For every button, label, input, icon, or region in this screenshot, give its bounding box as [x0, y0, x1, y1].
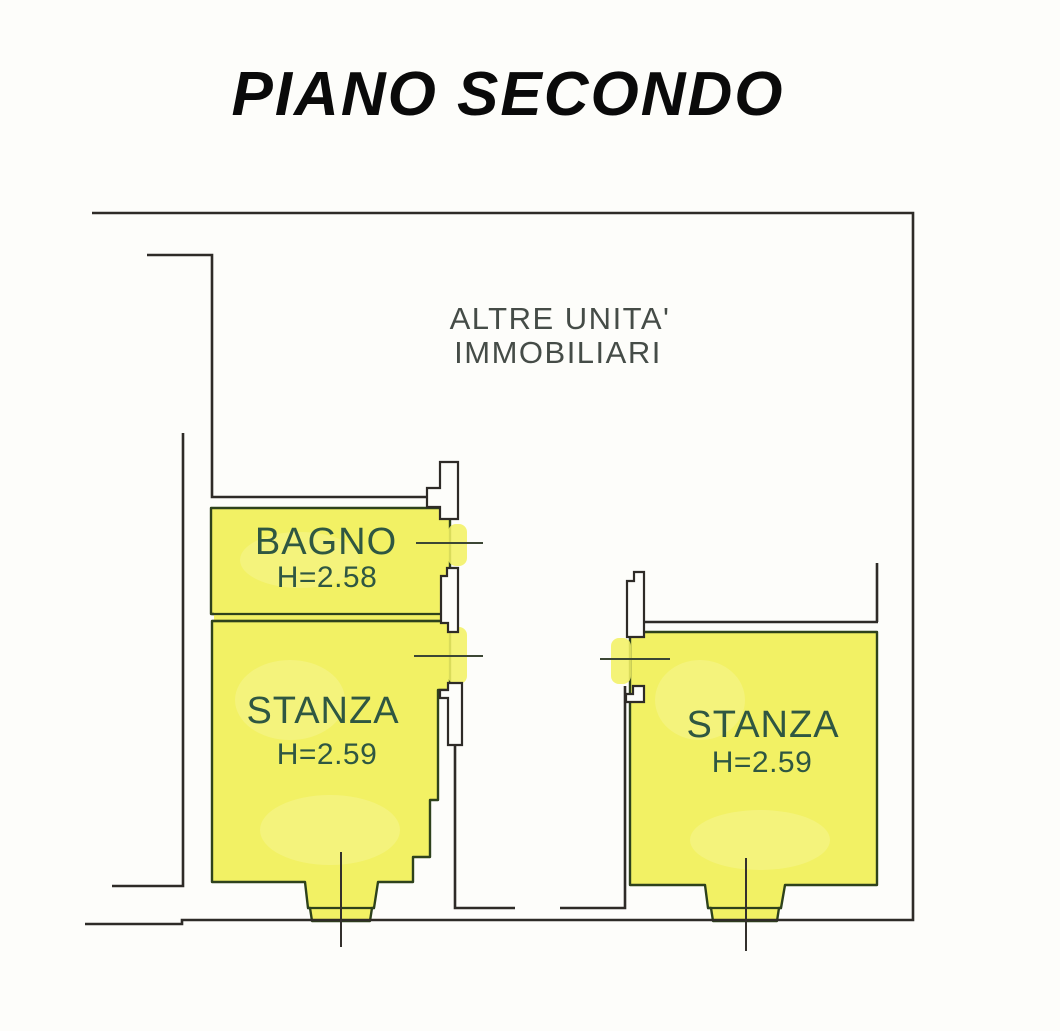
corridor-wall-right	[560, 686, 625, 908]
left-outer-wall	[112, 433, 183, 886]
stanza-right-door-bleed	[611, 638, 631, 684]
door-jamb-stanza-right-top	[627, 572, 644, 637]
interior-wall-top-left	[147, 255, 427, 497]
scanned-floor-plan-page: PIANO SECONDO	[0, 0, 1060, 1031]
highlight-texture	[690, 810, 830, 870]
highlight-texture	[260, 795, 400, 865]
room-label-stanza-right: STANZA	[686, 704, 839, 746]
door-jamb-stanza-right-bottom	[626, 686, 644, 702]
room-label-bagno: BAGNO	[255, 521, 397, 563]
room-height-stanza-left: H=2.59	[277, 738, 378, 771]
floor-plan: ALTRE UNITA' IMMOBILIARI BAGNO H=2.58 ST…	[85, 213, 913, 951]
area-label-line1: ALTRE UNITA'	[450, 301, 671, 336]
floor-plan-drawing: PIANO SECONDO	[0, 0, 1060, 1031]
floor-title: PIANO SECONDO	[231, 60, 784, 129]
corridor-wall-left	[455, 686, 515, 908]
stanza-right-top-wall	[643, 563, 878, 622]
room-label-stanza-left: STANZA	[246, 690, 399, 732]
door-jamb-bagno-bottom	[441, 568, 458, 632]
room-height-bagno: H=2.58	[277, 561, 378, 594]
room-height-stanza-right: H=2.59	[712, 746, 813, 779]
area-label-line2: IMMOBILIARI	[454, 335, 662, 370]
door-jamb-stanza-left	[440, 683, 462, 745]
room-stanza-left-area	[212, 621, 450, 921]
bagno-door-bleed	[448, 524, 467, 566]
